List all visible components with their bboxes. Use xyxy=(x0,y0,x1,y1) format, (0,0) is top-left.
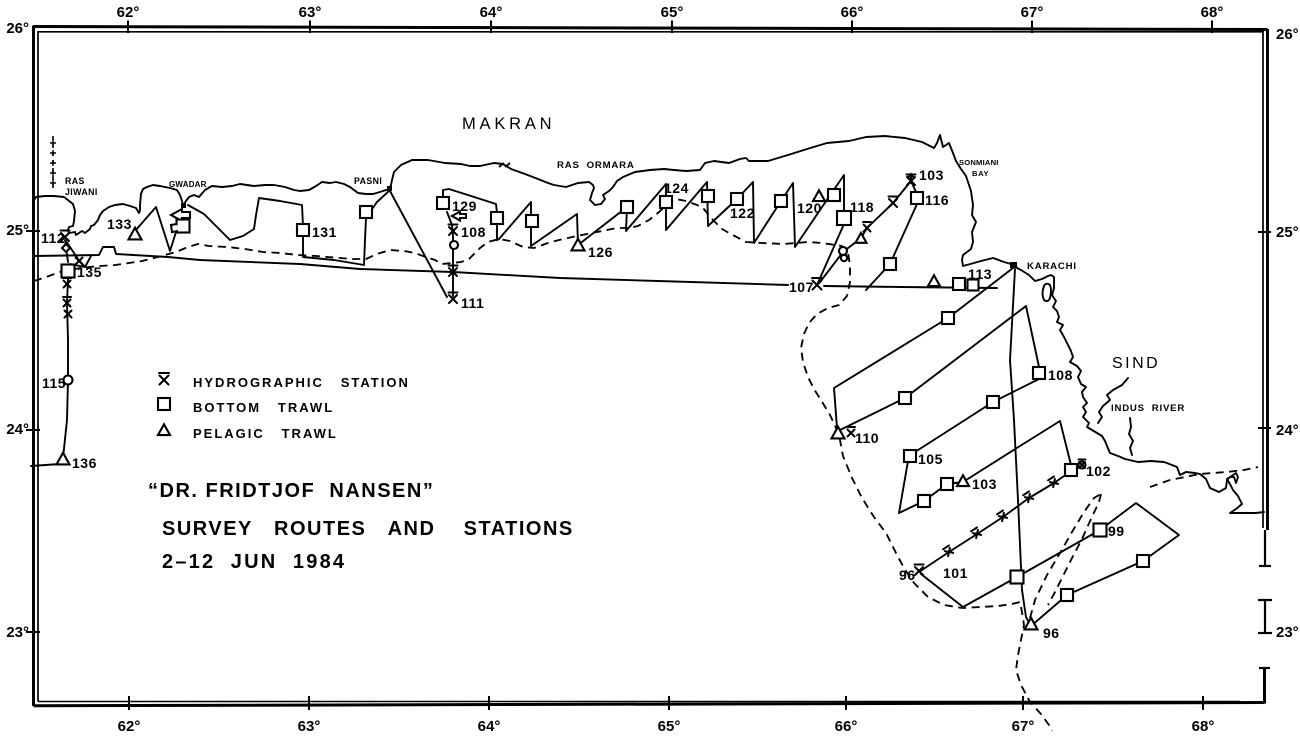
svg-text:107: 107 xyxy=(789,279,814,295)
svg-text:24°: 24° xyxy=(1276,422,1299,439)
svg-text:INDUS RIVER: INDUS RIVER xyxy=(1111,403,1185,414)
svg-text:68°: 68° xyxy=(1192,718,1215,735)
svg-text:120: 120 xyxy=(797,200,822,216)
svg-text:26°: 26° xyxy=(6,20,29,37)
svg-text:BOTTOM TRAWL: BOTTOM TRAWL xyxy=(193,400,334,415)
svg-text:101: 101 xyxy=(943,565,968,581)
svg-text:112: 112 xyxy=(41,230,65,246)
svg-text:108: 108 xyxy=(1048,367,1073,383)
svg-text:BAY: BAY xyxy=(972,169,989,178)
svg-text:2–12 JUN 1984: 2–12 JUN 1984 xyxy=(162,551,346,573)
svg-text:129: 129 xyxy=(452,198,477,214)
svg-text:96: 96 xyxy=(1043,625,1060,641)
svg-text:SURVEY ROUTES AND STATI: SURVEY ROUTES AND STATIONS xyxy=(162,518,574,540)
svg-text:126: 126 xyxy=(588,244,613,260)
svg-text:122: 122 xyxy=(730,205,755,221)
svg-text:133: 133 xyxy=(107,216,132,232)
svg-text:KARACHI: KARACHI xyxy=(1027,261,1077,272)
svg-text:JIWANI: JIWANI xyxy=(65,187,98,197)
svg-text:HYDROGRAPHIC STATION: HYDROGRAPHIC STATION xyxy=(193,375,410,390)
svg-text:SONMIANI: SONMIANI xyxy=(959,158,999,167)
svg-text:64°: 64° xyxy=(480,4,503,21)
svg-text:68°: 68° xyxy=(1201,4,1224,21)
svg-text:PASNI: PASNI xyxy=(354,176,382,186)
svg-text:25°: 25° xyxy=(6,222,29,239)
svg-text:96: 96 xyxy=(899,567,916,583)
svg-text:PELAGIC TRAWL: PELAGIC TRAWL xyxy=(193,426,338,441)
svg-text:GWADAR: GWADAR xyxy=(169,180,207,189)
svg-text:118: 118 xyxy=(850,199,874,215)
svg-text:110: 110 xyxy=(855,430,879,446)
svg-text:63°: 63° xyxy=(298,718,321,735)
svg-text:103: 103 xyxy=(919,167,944,183)
svg-text:62°: 62° xyxy=(117,4,140,21)
svg-text:25°: 25° xyxy=(1276,224,1299,241)
svg-text:115: 115 xyxy=(42,375,66,391)
svg-text:103: 103 xyxy=(972,476,997,492)
svg-text:66°: 66° xyxy=(841,4,864,21)
svg-text:SIND: SIND xyxy=(1112,355,1160,372)
svg-text:124: 124 xyxy=(664,180,689,196)
svg-text:116: 116 xyxy=(925,192,949,208)
svg-text:99: 99 xyxy=(1108,523,1125,539)
svg-text:66°: 66° xyxy=(835,718,858,735)
svg-text:64°: 64° xyxy=(478,718,501,735)
svg-text:136: 136 xyxy=(72,455,97,471)
svg-text:MAKRAN: MAKRAN xyxy=(462,115,555,133)
svg-text:135: 135 xyxy=(77,264,102,280)
svg-text:67°: 67° xyxy=(1012,718,1035,735)
svg-text:65°: 65° xyxy=(658,718,681,735)
svg-text:RAS: RAS xyxy=(65,176,85,186)
svg-text:“DR. FRIDTJOF NANSEN”: “DR. FRIDTJOF NANSEN” xyxy=(148,480,434,502)
svg-text:65°: 65° xyxy=(661,4,684,21)
svg-text:62°: 62° xyxy=(118,718,141,735)
svg-text:108: 108 xyxy=(461,224,486,240)
svg-text:26°: 26° xyxy=(1276,26,1299,43)
svg-text:23°: 23° xyxy=(1276,624,1299,641)
svg-text:102: 102 xyxy=(1086,463,1111,479)
svg-text:23°: 23° xyxy=(6,624,29,641)
svg-text:RAS ORMARA: RAS ORMARA xyxy=(557,160,635,171)
svg-text:113: 113 xyxy=(968,266,992,282)
svg-text:131: 131 xyxy=(312,224,337,240)
svg-text:67°: 67° xyxy=(1021,4,1044,21)
svg-text:24°: 24° xyxy=(6,421,29,438)
svg-text:105: 105 xyxy=(918,451,943,467)
svg-text:63°: 63° xyxy=(299,4,322,21)
svg-text:111: 111 xyxy=(461,295,484,311)
